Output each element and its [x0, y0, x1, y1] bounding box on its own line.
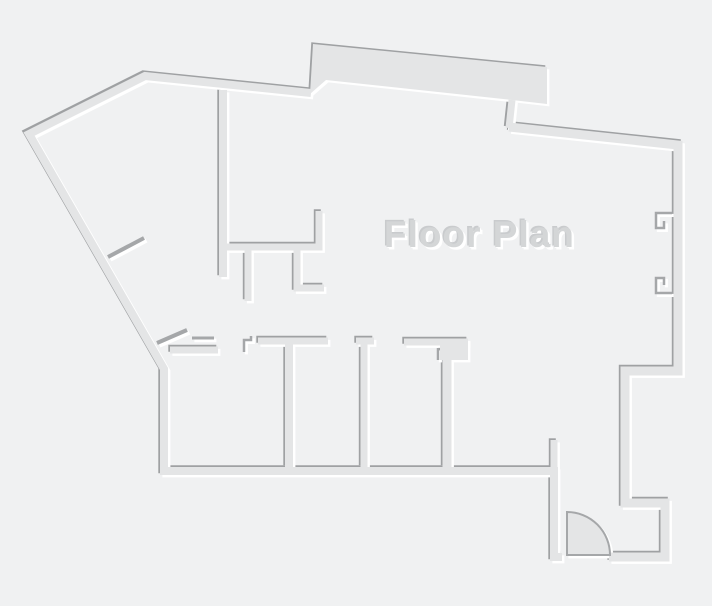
outer-wall-right-dark-layer — [507, 125, 676, 555]
top-bump-thick-wall — [310, 44, 547, 104]
outer-wall-right — [509, 127, 678, 557]
floor-plan-canvas: Floor Plan — [0, 0, 712, 606]
plan-title: Floor Plan — [384, 214, 575, 256]
kitchen-l-wall-dark-layer — [224, 209, 317, 245]
outer-wall-right-white-layer — [511, 129, 680, 559]
outer-wall-left-and-bottom-dark-layer — [27, 74, 560, 555]
step-wall-below-top-bump — [509, 100, 512, 128]
floor-plan-drawing — [0, 0, 712, 606]
kitchen-l-wall — [226, 211, 319, 247]
outer-wall-left-and-bottom-white-layer — [31, 78, 564, 559]
diagonal-door-jamb-upper-white-layer — [110, 240, 146, 259]
outer-wall-left-and-bottom — [29, 76, 562, 557]
diagonal-door-jamb-upper — [108, 238, 144, 257]
entry-door-swing-arc — [567, 512, 610, 555]
